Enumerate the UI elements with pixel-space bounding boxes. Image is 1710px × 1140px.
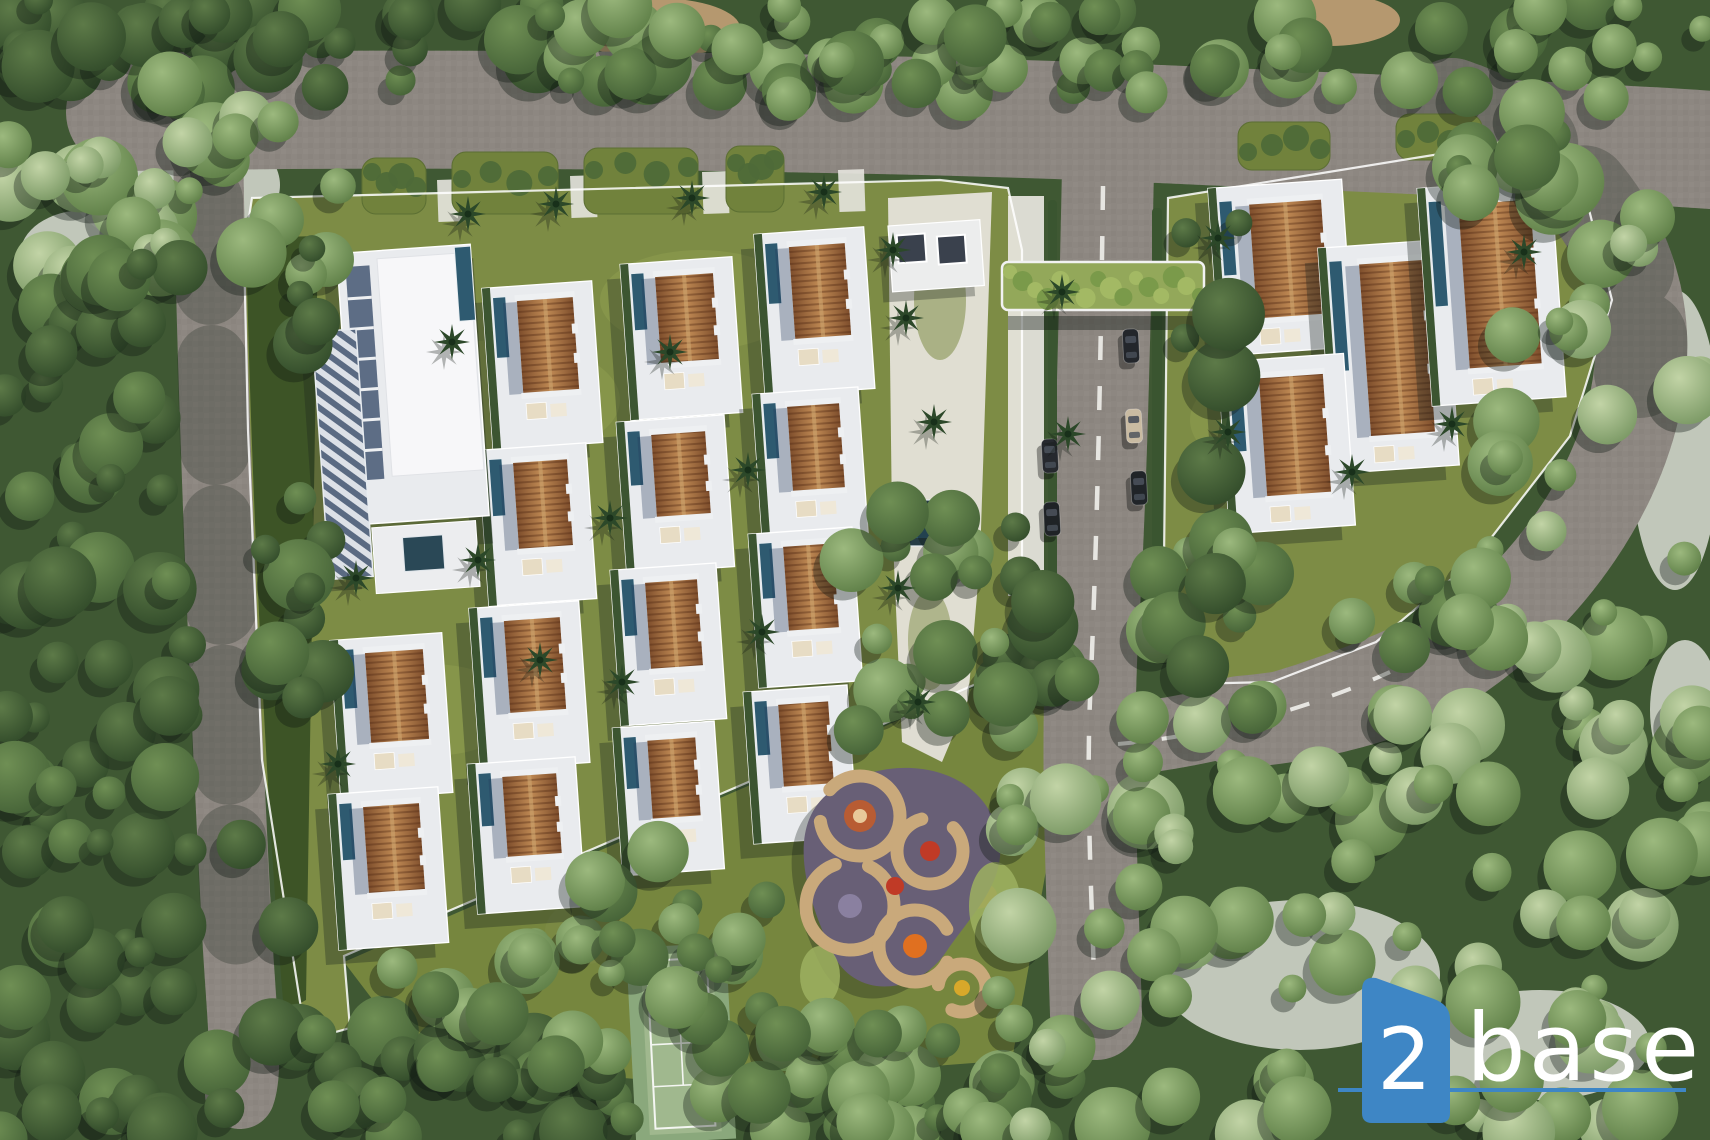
site-plan-render: 2 base — [0, 0, 1710, 1140]
terrace — [816, 641, 833, 655]
villa — [596, 563, 728, 741]
site-plan-svg — [0, 0, 1710, 1140]
terrace — [792, 640, 813, 657]
terrace — [511, 866, 532, 883]
hedge-strip — [1152, 208, 1162, 548]
terrace — [1374, 445, 1395, 462]
terrace — [535, 867, 552, 881]
terrace — [820, 501, 837, 515]
driveway — [838, 169, 865, 212]
logo-name: base — [1466, 1002, 1702, 1096]
terrace — [398, 753, 415, 767]
terrace — [664, 372, 685, 389]
terrace — [372, 902, 393, 919]
terrace — [798, 348, 819, 365]
entrance-pergola — [1002, 262, 1210, 330]
terrace — [374, 752, 395, 769]
terrace — [684, 527, 701, 541]
driveway — [702, 171, 729, 214]
terrace — [787, 796, 808, 813]
terrace — [660, 526, 681, 543]
terrace — [1260, 328, 1281, 345]
terrace — [550, 403, 567, 417]
terrace — [1294, 506, 1311, 520]
terrace — [1284, 328, 1301, 342]
cabana — [937, 235, 967, 265]
spa-pool — [402, 535, 444, 572]
villa — [740, 227, 876, 411]
logo-badge: 2 — [1356, 974, 1453, 1124]
logo-number: 2 — [1356, 996, 1453, 1124]
terrace — [796, 500, 817, 517]
terrace — [396, 903, 413, 917]
villa — [468, 281, 604, 465]
terrace — [537, 723, 554, 737]
terrace — [522, 558, 543, 575]
terrace — [822, 349, 839, 363]
terrace — [526, 402, 547, 419]
villa — [314, 787, 450, 965]
terrace — [546, 559, 563, 573]
terrace — [1270, 506, 1291, 523]
terrace — [688, 373, 705, 387]
terrace — [678, 679, 695, 693]
terrace — [654, 678, 675, 695]
terrace — [513, 722, 534, 739]
terrace — [1398, 446, 1415, 460]
